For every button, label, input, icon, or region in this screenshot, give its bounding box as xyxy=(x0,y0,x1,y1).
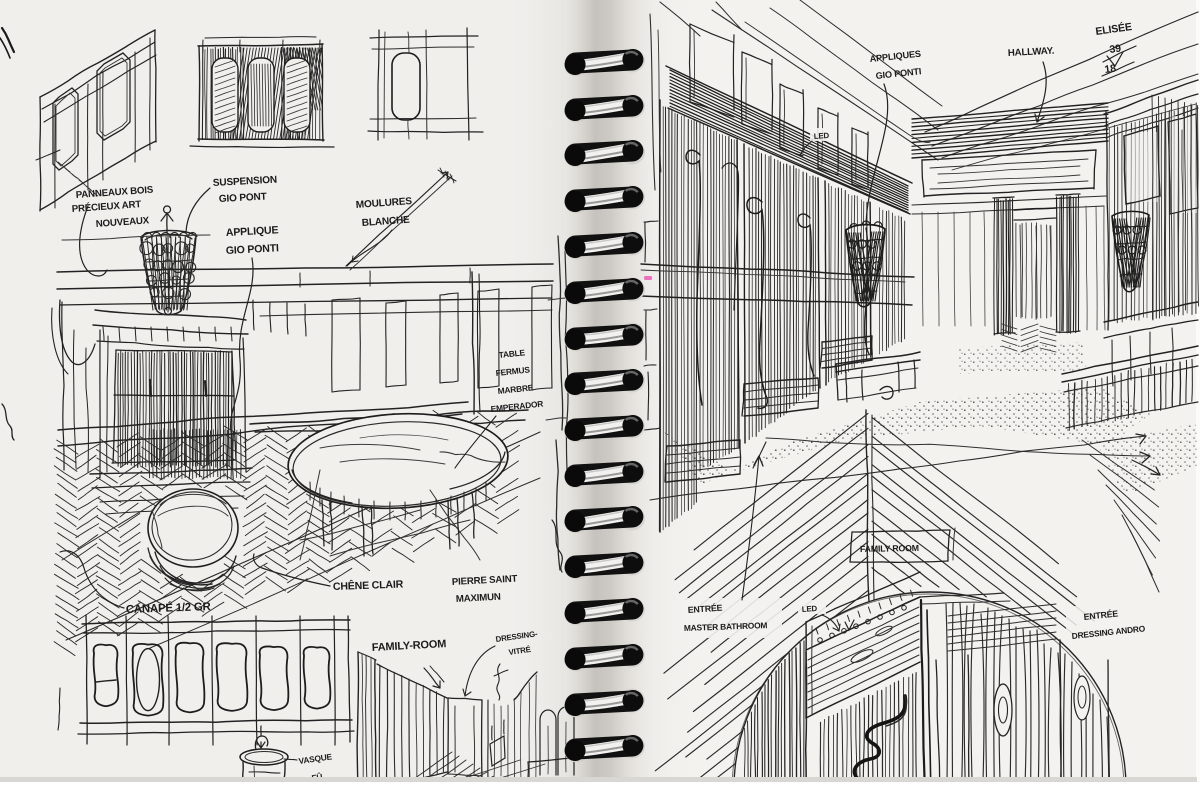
svg-text:FAMILY ROOM: FAMILY ROOM xyxy=(860,543,919,554)
svg-text:LED: LED xyxy=(814,131,830,141)
svg-text:CHÊNE CLAIR: CHÊNE CLAIR xyxy=(333,578,404,593)
svg-text:39: 39 xyxy=(1109,42,1122,56)
svg-text:MAXIMUN: MAXIMUN xyxy=(456,592,502,605)
svg-text:LED: LED xyxy=(802,604,818,614)
